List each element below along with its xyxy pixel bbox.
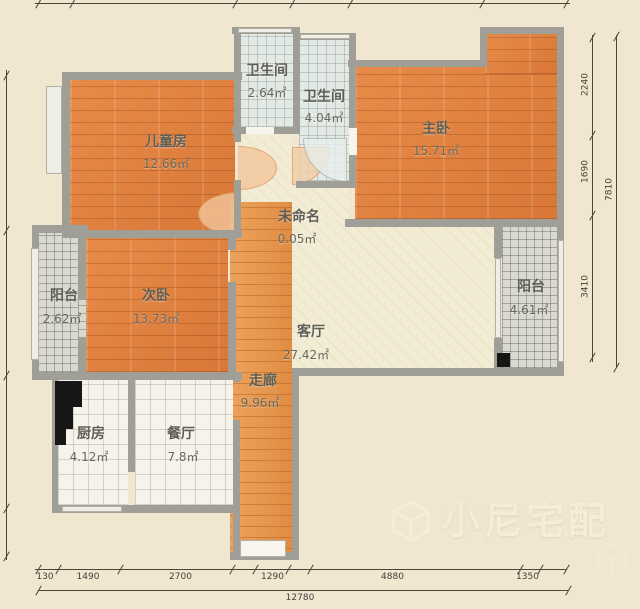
room-label-corridor: 走廊 bbox=[218, 374, 308, 388]
dim-bottom-2: 2700 bbox=[158, 573, 203, 582]
dim-right-total: 7810 bbox=[606, 170, 615, 210]
dimension-tick bbox=[35, 0, 41, 9]
dimension-tick bbox=[479, 0, 485, 9]
floor-plan: 卫生间 2.64㎡ 卫生间 4.04㎡ 主卧 15.71㎡ 儿童房 12.66㎡… bbox=[0, 0, 640, 609]
balcony-slider-window bbox=[495, 258, 501, 338]
dimension-line-bottom-total bbox=[38, 590, 568, 591]
door-gap-bath1 bbox=[246, 127, 274, 134]
watermark-brand: 小尼宅配 bbox=[442, 502, 610, 540]
wall bbox=[233, 420, 240, 560]
room-label-balcony-right: 阳台 bbox=[486, 280, 576, 294]
room-label-balcony-left: 阳台 bbox=[19, 289, 109, 303]
dimension-tick bbox=[613, 362, 619, 372]
dim-bottom-0: 130 bbox=[30, 573, 60, 582]
dimension-tick bbox=[347, 0, 353, 9]
window bbox=[46, 86, 62, 174]
room-area-dining: 7.8㎡ bbox=[138, 451, 228, 463]
entry-door bbox=[240, 540, 286, 557]
kitchen-counter-fixture bbox=[55, 381, 82, 407]
window bbox=[558, 240, 564, 362]
dim-bottom-3: 1290 bbox=[250, 573, 295, 582]
room-area-second: 13.73㎡ bbox=[111, 313, 201, 325]
dimension-line-top bbox=[35, 3, 570, 4]
wall bbox=[296, 181, 356, 188]
wall bbox=[228, 238, 236, 250]
room-area-bath2: 4.04㎡ bbox=[279, 112, 369, 124]
room-area-corridor: 9.96㎡ bbox=[215, 397, 305, 409]
wall bbox=[480, 27, 564, 34]
room-area-master: 15.71㎡ bbox=[391, 145, 481, 157]
dimension-line-left bbox=[6, 70, 7, 560]
room-area-kitchen: 4.12㎡ bbox=[44, 451, 134, 463]
dimension-line-right bbox=[592, 35, 593, 362]
dim-bottom-5: 1350 bbox=[505, 573, 550, 582]
balcony-fixture bbox=[497, 353, 510, 367]
room-area-living: 27.42㎡ bbox=[261, 349, 351, 361]
room-label-dining: 餐厅 bbox=[136, 427, 226, 441]
dimension-tick bbox=[3, 551, 9, 561]
dim-bottom-4: 4880 bbox=[370, 573, 415, 582]
room-area-children: 12.66㎡ bbox=[121, 158, 211, 170]
room-label-bath1: 卫生间 bbox=[222, 64, 312, 78]
dim-right-0: 2240 bbox=[582, 65, 591, 105]
dim-bottom-total: 12780 bbox=[275, 594, 325, 603]
wall bbox=[345, 219, 564, 227]
wall bbox=[557, 27, 564, 226]
room-label-kitchen: 厨房 bbox=[46, 427, 136, 441]
kitchen-counter-fixture bbox=[55, 407, 73, 429]
wall bbox=[62, 72, 70, 232]
room-label-unnamed: 未命名 bbox=[254, 210, 344, 224]
wall bbox=[32, 372, 242, 380]
door-gap-bath2 bbox=[349, 128, 357, 155]
room-label-master: 主卧 bbox=[391, 122, 481, 136]
dim-right-1: 1690 bbox=[582, 152, 591, 192]
wall bbox=[78, 338, 86, 378]
wall bbox=[494, 368, 564, 376]
room-area-unnamed: 0.05㎡ bbox=[252, 233, 342, 245]
wall bbox=[228, 282, 236, 372]
room-area-balcony-right: 4.61㎡ bbox=[484, 304, 574, 316]
room-label-living: 客厅 bbox=[266, 325, 356, 339]
window bbox=[31, 248, 39, 360]
dimension-line-right-total bbox=[616, 35, 617, 368]
dimension-tick bbox=[232, 0, 238, 9]
room-floor-second bbox=[86, 238, 228, 372]
window bbox=[62, 506, 122, 512]
dimension-tick bbox=[289, 0, 295, 9]
cube-logo-icon-small bbox=[594, 542, 630, 578]
dim-right-2: 3410 bbox=[582, 267, 591, 307]
room-label-children: 儿童房 bbox=[121, 135, 211, 149]
room-floor-master bbox=[355, 67, 557, 219]
wall bbox=[62, 72, 242, 80]
watermark: 小尼宅配 bbox=[388, 498, 610, 544]
cube-logo-icon bbox=[388, 498, 434, 544]
wall bbox=[348, 60, 485, 67]
room-label-bath2: 卫生间 bbox=[279, 90, 369, 104]
dim-bottom-1: 1490 bbox=[68, 573, 108, 582]
wall bbox=[62, 230, 242, 238]
room-floor-master-upper bbox=[485, 34, 557, 74]
wall bbox=[292, 368, 502, 376]
room-floor-balcony-right bbox=[502, 226, 557, 368]
window bbox=[300, 34, 350, 39]
wall bbox=[234, 180, 241, 238]
dimension-tick bbox=[69, 0, 75, 9]
dimension-tick bbox=[563, 0, 569, 9]
wall bbox=[494, 226, 502, 258]
room-label-second: 次卧 bbox=[111, 289, 201, 303]
window bbox=[238, 28, 292, 33]
room-area-balcony-left: 2.62㎡ bbox=[17, 313, 107, 325]
dimension-line-bottom bbox=[35, 569, 567, 570]
wall bbox=[234, 27, 241, 142]
wall bbox=[480, 27, 487, 67]
